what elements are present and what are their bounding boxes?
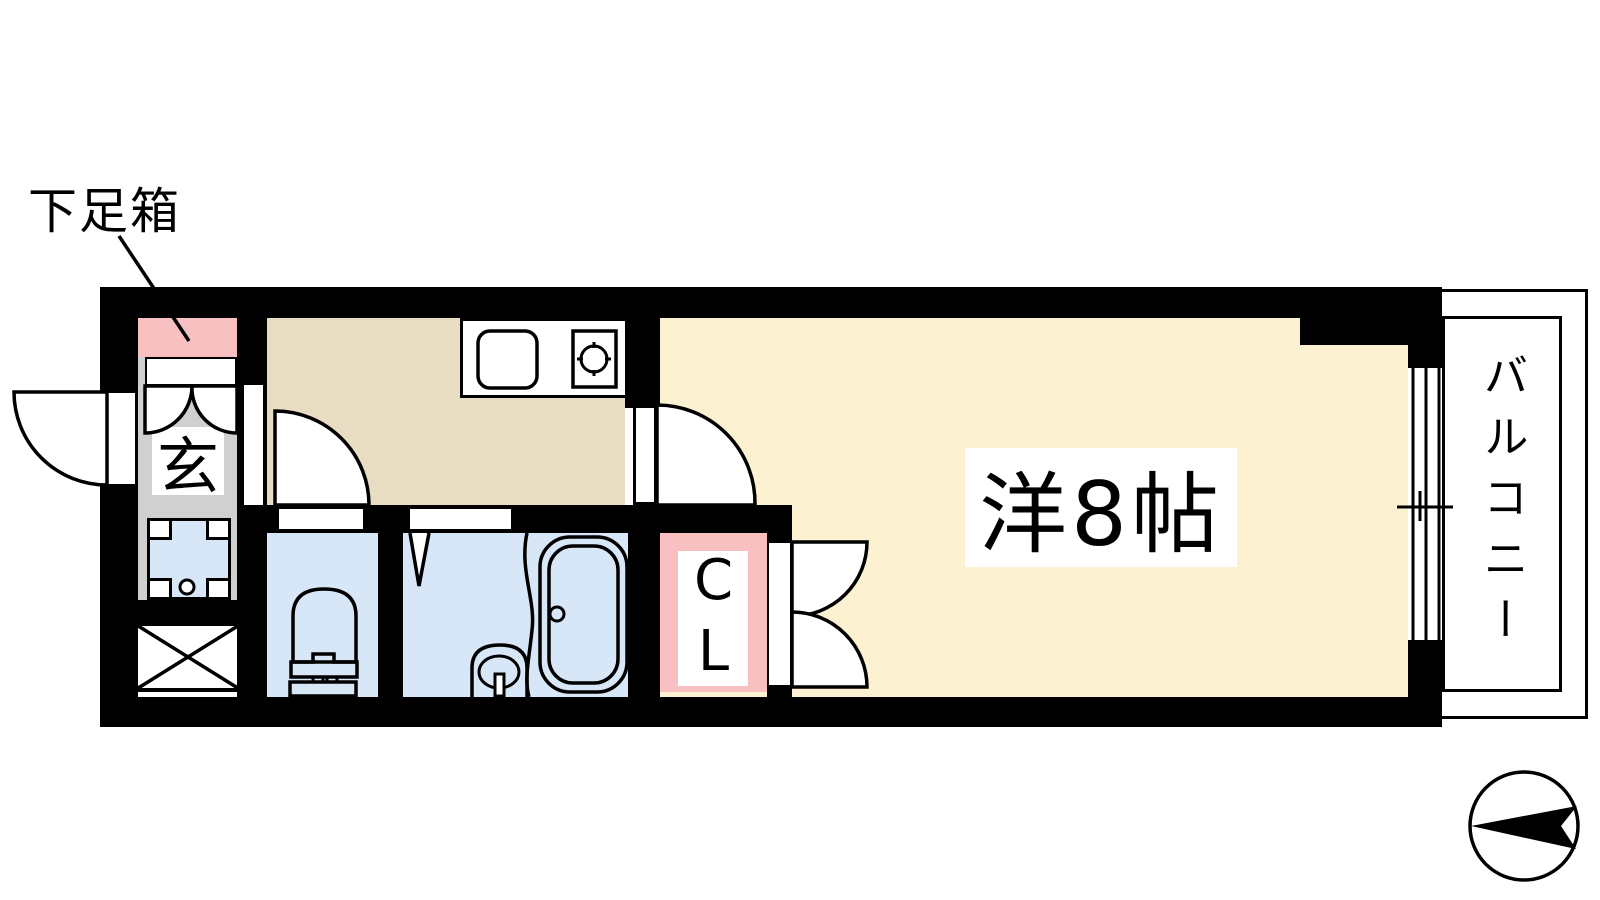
pan-corner <box>147 578 172 600</box>
entrance-label: 玄 <box>157 416 219 506</box>
wall-toilet-bath <box>378 533 403 697</box>
wall-bath-closet <box>628 533 660 697</box>
main-room-label: 洋8帖 <box>979 444 1223 571</box>
floor-plan: バルコニー CL 玄 洋8帖 下足箱 <box>0 0 1600 900</box>
pan-corner <box>206 518 231 540</box>
compass-arrow-icon <box>1471 806 1577 849</box>
bathroom-doorway <box>408 507 513 531</box>
outer-wall-top <box>100 287 1442 318</box>
shoe-box-label: 下足箱 <box>28 172 181 243</box>
window-band <box>1408 368 1442 640</box>
entrance-kitchen-opening <box>242 383 265 507</box>
entrance-door-leaf <box>103 390 138 487</box>
kitchen-counter <box>460 318 628 398</box>
entrance-door-swing-icon <box>14 392 107 485</box>
pan-corner <box>147 518 172 540</box>
shoe-box-opening <box>145 357 237 386</box>
wall-kitchen-main <box>625 318 660 408</box>
room-toilet <box>267 533 378 697</box>
wall-under-pan <box>133 600 240 622</box>
closet-label: CL <box>685 548 741 690</box>
pan-corner <box>206 578 231 600</box>
closet-opening <box>767 541 792 687</box>
wall-closet-stub-top <box>767 505 792 543</box>
room-bathroom <box>403 533 628 697</box>
toilet-doorway <box>277 507 365 531</box>
shoe-box <box>138 318 240 357</box>
outer-wall-bottom <box>100 697 1442 727</box>
kitchen-door-leaf <box>633 405 657 505</box>
pipe-space-icon <box>133 622 243 692</box>
compass-circle <box>1470 772 1578 880</box>
outer-wall-left <box>100 287 138 727</box>
balcony-label: バルコニー <box>1442 316 1562 692</box>
